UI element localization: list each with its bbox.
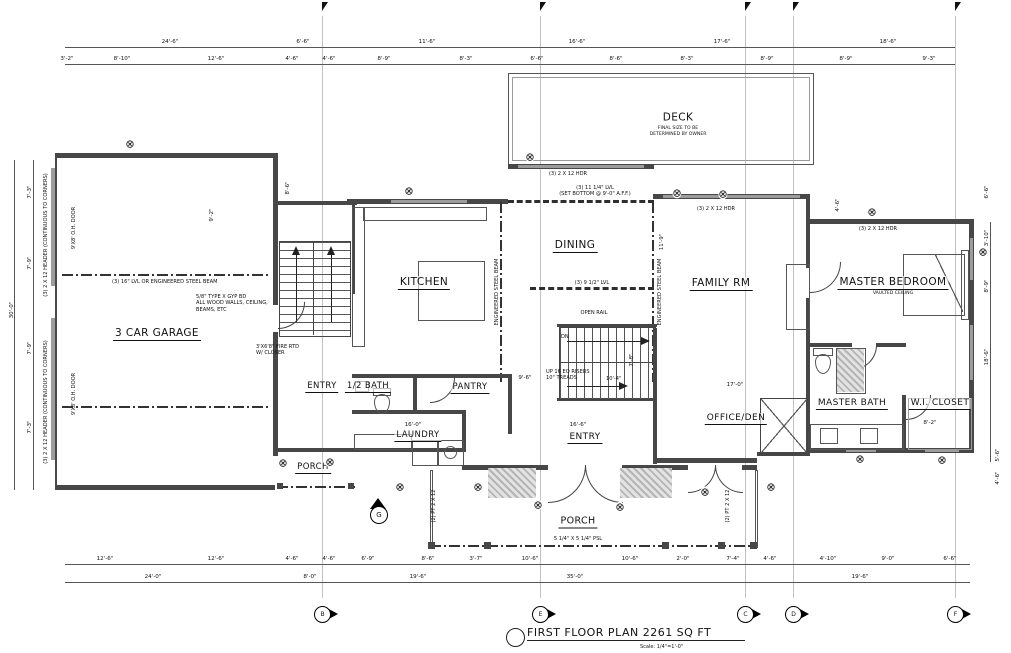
dimension-line bbox=[14, 160, 15, 490]
window-wall bbox=[663, 195, 800, 198]
room-label-master: MASTER BEDROOM bbox=[838, 276, 949, 290]
porch-hatch bbox=[620, 468, 672, 498]
annotation: (3) 2 X 12 HEADER (CONTINUOUS TO CORNERS… bbox=[43, 173, 49, 296]
room-label-family: FAMILY RM bbox=[690, 277, 753, 291]
dim-label: 16'-0" bbox=[405, 422, 422, 428]
title-block: FIRST FLOOR PLAN 2261 SQ FT bbox=[527, 626, 745, 641]
dim-label: 4'-6" bbox=[763, 556, 776, 562]
dim-label: 6'-6" bbox=[943, 556, 956, 562]
window-wall bbox=[970, 325, 973, 380]
wall-segment bbox=[55, 153, 57, 490]
dim-label: 6'-9" bbox=[361, 556, 374, 562]
stair-arrow-head bbox=[327, 246, 335, 255]
wall-segment bbox=[55, 153, 275, 158]
window-symbol: ⊗ bbox=[615, 502, 624, 513]
window-symbol: ⊗ bbox=[125, 139, 134, 150]
porch-column bbox=[348, 483, 354, 489]
beam-line bbox=[62, 274, 268, 276]
room-label-master-bath: MASTER BATH bbox=[816, 398, 888, 410]
fireplace-niche bbox=[786, 264, 810, 330]
dim-label: 8'-6" bbox=[609, 56, 622, 62]
window-symbol: ⊗ bbox=[525, 152, 534, 163]
window-symbol: ⊗ bbox=[978, 247, 987, 258]
grid-flag bbox=[745, 2, 751, 11]
dim-label: 11'-9" bbox=[659, 234, 665, 251]
drawing-title: FIRST FLOOR PLAN 2261 SQ FT bbox=[527, 626, 745, 639]
annotation: (3) 11 1/4" LVL (SET BOTTOM @ 9'-0" A.F.… bbox=[559, 185, 631, 198]
toilet bbox=[815, 354, 831, 374]
stair-rail bbox=[313, 241, 314, 335]
dim-label: 8'-9" bbox=[839, 56, 852, 62]
annotation: 5 1/4" X 5 1/4" PSL bbox=[554, 536, 602, 542]
annotation: (2) PT 2 X 12 bbox=[725, 489, 731, 522]
dim-label: 19'-6" bbox=[410, 574, 427, 580]
annotation: 5/8" TYPE X GYP BD ALL WOOD WALLS, CEILI… bbox=[196, 294, 268, 313]
porch-line bbox=[430, 545, 757, 547]
window-wall bbox=[970, 238, 973, 280]
dim-label: 18'-6" bbox=[880, 39, 897, 45]
grid-marker: F bbox=[947, 606, 964, 623]
wall-segment bbox=[653, 458, 757, 463]
dim-label: 3'-10" bbox=[984, 230, 990, 247]
grid-flag bbox=[322, 2, 328, 11]
dim-label: 30'-0" bbox=[9, 302, 15, 319]
porch-column bbox=[428, 542, 435, 549]
shower-outline bbox=[836, 348, 866, 394]
dimension-line bbox=[33, 160, 34, 490]
beam-line bbox=[62, 406, 268, 408]
annotation: (3) 2 X 12 HDR bbox=[859, 226, 897, 232]
window-symbol: ⊗ bbox=[718, 189, 727, 200]
dim-label: 4'-6" bbox=[995, 471, 1001, 484]
window-symbol: ⊗ bbox=[395, 482, 404, 493]
window-symbol: ⊗ bbox=[533, 500, 542, 511]
porch-column bbox=[750, 542, 757, 549]
stair-dn-arrow bbox=[567, 341, 643, 342]
dim-label: 4'-6" bbox=[285, 556, 298, 562]
dim-label: 4'-10" bbox=[820, 556, 837, 562]
dim-label: 9'-6" bbox=[518, 375, 531, 381]
dimension-line bbox=[65, 582, 970, 583]
dim-label: 8'-0" bbox=[303, 574, 316, 580]
dim-label: 12'-6" bbox=[208, 56, 225, 62]
dimension-line bbox=[65, 64, 955, 65]
dim-label: 9'-3" bbox=[922, 56, 935, 62]
window-symbol: ⊗ bbox=[766, 482, 775, 493]
room-label-kitchen: KITCHEN bbox=[398, 276, 450, 290]
dim-label: 4'-6" bbox=[322, 56, 335, 62]
gas-meter-symbol: G bbox=[370, 506, 388, 524]
annotation: (2) PT 2 X 12 bbox=[431, 489, 437, 522]
dim-label: 12'-6" bbox=[97, 556, 114, 562]
dim-label: 16'-6" bbox=[570, 422, 587, 428]
porch-column bbox=[662, 542, 669, 549]
door-swing bbox=[810, 262, 841, 293]
annotation: 9'X8' O.H. DOOR bbox=[71, 373, 77, 415]
room-label-pantry: PANTRY bbox=[451, 382, 490, 394]
garage-door-panel bbox=[51, 318, 55, 460]
stair-up-arrow bbox=[567, 386, 621, 387]
dim-label: 10'-6" bbox=[522, 556, 539, 562]
dimension-line bbox=[65, 47, 955, 48]
room-label-deck: DECK bbox=[661, 112, 696, 125]
annotation: UP 16 EQ RISERS 10" TREADS bbox=[546, 369, 590, 382]
annotation: ENGINEERED STEEL BEAM bbox=[494, 259, 500, 326]
wall-segment bbox=[352, 410, 462, 414]
stair-arrow bbox=[331, 254, 332, 322]
room-label-garage: 3 CAR GARAGE bbox=[113, 327, 201, 341]
dim-label: 4'-6" bbox=[285, 56, 298, 62]
dim-label: 8'-3" bbox=[459, 56, 472, 62]
dim-label: 7'-3" bbox=[27, 420, 33, 433]
stair-arrow-head bbox=[619, 382, 628, 390]
annotation: (3) 2 X 12 HEADER (CONTINUOUS TO CORNERS… bbox=[43, 340, 49, 463]
dim-label: 7'-9" bbox=[27, 341, 33, 354]
entry-door-swing bbox=[548, 465, 586, 503]
wall-segment bbox=[273, 153, 278, 305]
bed-headboard bbox=[961, 250, 969, 320]
dim-label: 19'-6" bbox=[852, 574, 869, 580]
dim-label: 8'-2" bbox=[923, 420, 936, 426]
grid-flag bbox=[793, 2, 799, 11]
grid-flag bbox=[540, 2, 546, 11]
dim-label: 4'-6" bbox=[322, 556, 335, 562]
window-wall bbox=[518, 165, 644, 168]
dim-label: 8'-9" bbox=[760, 56, 773, 62]
dim-label: 24'-6" bbox=[162, 39, 179, 45]
window-symbol: ⊗ bbox=[672, 188, 681, 199]
chase-xbox bbox=[760, 398, 808, 454]
wall-segment bbox=[508, 374, 512, 434]
dim-label: 10'-6" bbox=[622, 556, 639, 562]
dim-label: 8'-6" bbox=[421, 556, 434, 562]
window-symbol: ⊗ bbox=[278, 458, 287, 469]
grid-marker: C bbox=[737, 606, 754, 623]
washer bbox=[412, 440, 438, 466]
steel-beam-line bbox=[500, 202, 502, 382]
annotation: ENGINEERED STEEL BEAM bbox=[657, 259, 663, 326]
dim-label: 7'-9" bbox=[27, 256, 33, 269]
grid-marker: B bbox=[314, 606, 331, 623]
window-symbol: ⊗ bbox=[325, 457, 334, 468]
dim-label: 6'-6" bbox=[530, 56, 543, 62]
room-label-wic: W.I. CLOSET bbox=[909, 398, 971, 410]
annotation: (3) 16" LVL OR ENGINEERED STEEL BEAM bbox=[112, 279, 218, 285]
window-symbol: ⊗ bbox=[473, 482, 482, 493]
window-wall bbox=[391, 200, 467, 203]
dim-label: 9'-0" bbox=[881, 556, 894, 562]
drawing-scale: Scale: 1/4"=1'-0" bbox=[640, 644, 683, 650]
window-symbol: ⊗ bbox=[855, 454, 864, 465]
annotation: (3) 2 X 12 HDR bbox=[697, 206, 735, 212]
wall-segment bbox=[277, 201, 357, 205]
dim-label: 8'-9" bbox=[377, 56, 390, 62]
window-symbol: ⊗ bbox=[937, 455, 946, 466]
room-label-entry-west: ENTRY bbox=[305, 381, 338, 393]
sink bbox=[860, 428, 878, 444]
wall-segment bbox=[810, 343, 852, 347]
dim-label: 6'-6" bbox=[296, 39, 309, 45]
dim-label: 2'-0" bbox=[676, 556, 689, 562]
dim-label: 4'-6" bbox=[835, 198, 841, 211]
dim-label: 24'-0" bbox=[145, 574, 162, 580]
room-label-dining: DINING bbox=[553, 239, 598, 253]
porch-hatch bbox=[488, 468, 536, 498]
grid-flag bbox=[955, 2, 961, 11]
wall-segment bbox=[55, 485, 275, 490]
dim-label: 8'-9" bbox=[984, 279, 990, 292]
dim-label: 18'-6" bbox=[984, 349, 990, 366]
dim-label: 8'-3" bbox=[680, 56, 693, 62]
annotation: (3) 9 1/2" LVL bbox=[575, 280, 609, 286]
wall-segment bbox=[876, 343, 906, 347]
dim-label: 3'-2" bbox=[60, 56, 73, 62]
washer-drum bbox=[444, 446, 457, 459]
dim-label: 9'-2" bbox=[209, 208, 215, 221]
dim-label: 17'-6" bbox=[714, 39, 731, 45]
title-bubble bbox=[506, 628, 525, 647]
stair-landing-line bbox=[559, 362, 654, 363]
window-symbol: ⊗ bbox=[867, 207, 876, 218]
room-label-porch-south: PORCH bbox=[558, 516, 597, 529]
stair-arrow-head bbox=[641, 337, 650, 345]
annotation: 9'X8' O.H. DOOR bbox=[71, 207, 77, 249]
master-note: VAULTED CEILING bbox=[873, 291, 913, 297]
porch-line bbox=[277, 486, 355, 488]
dim-label: 35'-0" bbox=[567, 574, 584, 580]
dim-label: 3'-7" bbox=[469, 556, 482, 562]
annotation: (3) 2 X 12 HDR bbox=[549, 171, 587, 177]
toilet-tank bbox=[813, 348, 833, 356]
kitchen-counter bbox=[363, 207, 487, 221]
floor-plan-canvas: G 3 CAR GARAGE KITCHEN DINING DECK FINAL… bbox=[0, 0, 1011, 653]
dim-label: 12'-6" bbox=[208, 556, 225, 562]
dim-label: 5'-6" bbox=[995, 448, 1001, 461]
annotation: OPEN RAIL bbox=[581, 310, 608, 316]
porch-edge bbox=[755, 470, 758, 548]
window-symbol: ⊗ bbox=[404, 186, 413, 197]
grid-marker: E bbox=[532, 606, 549, 623]
kitchen-island bbox=[418, 261, 485, 321]
dim-label: 7'-8" bbox=[629, 353, 635, 366]
porch-column bbox=[484, 542, 491, 549]
annotation: 3'X6'8" FIRE RTD W/ CLOSER bbox=[256, 344, 299, 357]
annotation: DN bbox=[561, 334, 569, 340]
kitchen-counter bbox=[352, 207, 365, 347]
window-symbol: ⊗ bbox=[700, 487, 709, 498]
dim-label: 11'-6" bbox=[419, 39, 436, 45]
room-label-laundry: LAUNDRY bbox=[394, 430, 441, 442]
room-label-entry-main: ENTRY bbox=[567, 432, 602, 444]
annotation: 10'-4" bbox=[606, 376, 621, 382]
dim-label: 16'-6" bbox=[569, 39, 586, 45]
sink bbox=[820, 428, 838, 444]
deck-note: FINAL SIZE TO BE DETERMINED BY OWNER bbox=[650, 126, 707, 137]
dim-label: 17'-0" bbox=[727, 382, 744, 388]
beam-dashed bbox=[508, 200, 654, 203]
dim-label: 8'-10" bbox=[114, 56, 131, 62]
room-label-office: OFFICE/DEN bbox=[705, 413, 767, 425]
dim-label: 8'-6" bbox=[285, 181, 291, 194]
entry-door-swing bbox=[585, 465, 623, 503]
porch-column bbox=[277, 483, 283, 489]
garage-door-panel bbox=[51, 168, 55, 286]
dim-label: 6'-6" bbox=[984, 185, 990, 198]
wall-segment bbox=[413, 376, 417, 410]
wall-segment bbox=[806, 219, 974, 224]
dimension-line bbox=[990, 222, 991, 462]
dim-label: 7'-3" bbox=[27, 185, 33, 198]
stair-arrow-head bbox=[292, 246, 300, 255]
room-label-half-bath: 1/2 BATH bbox=[345, 381, 391, 393]
grid-marker: D bbox=[785, 606, 802, 623]
dimension-line bbox=[65, 564, 970, 565]
dim-label: 7'-4" bbox=[726, 556, 739, 562]
porch-column bbox=[718, 542, 725, 549]
beam-dashed bbox=[530, 287, 654, 290]
